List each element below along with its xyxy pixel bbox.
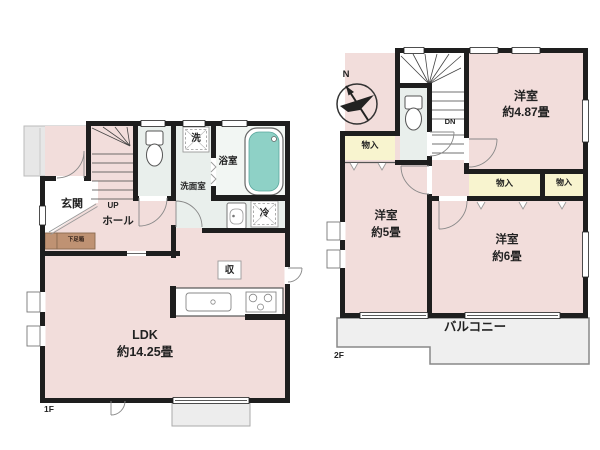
window (404, 48, 424, 54)
floor-plan-canvas: 玄関 ホール UP 下足箱 洗 浴室 洗面室 冷 収 LDK 約14.25畳 1… (0, 0, 600, 450)
window (583, 232, 589, 277)
casement-window (27, 292, 40, 312)
bedroom-a-size-label: 約4.87畳 (481, 106, 571, 118)
fixtures-2f (405, 96, 422, 130)
floor-plan-drawing (0, 0, 600, 450)
window (470, 48, 498, 54)
washroom-label: 洗面室 (174, 182, 212, 191)
bedroom-c-name-label: 洋室 (472, 235, 542, 247)
bedroom-a-name-label: 洋室 (486, 90, 566, 102)
floor1-label: 1F (44, 405, 64, 414)
balcony-label: バルコニー (415, 321, 535, 334)
window (583, 100, 589, 142)
shoe-box-label: 下足箱 (57, 238, 95, 244)
closet3-label: 物入 (545, 179, 583, 187)
casement-window (327, 222, 340, 240)
stairs-down-label: DN (438, 118, 462, 126)
window (183, 121, 205, 127)
kitchen-sink (186, 293, 231, 311)
window (40, 206, 46, 225)
casement-window (27, 326, 40, 346)
ldk-name-label: LDK (115, 329, 175, 342)
fridge-label: 冷 (251, 209, 278, 219)
window (512, 48, 540, 54)
closet1-label: 物入 (345, 141, 395, 150)
window (141, 121, 165, 127)
bedroom-b-size-label: 約5畳 (352, 228, 420, 240)
bedroom-c-size-label: 約6畳 (472, 252, 542, 264)
shoe-box-small (45, 233, 57, 249)
entrance-label: 玄関 (52, 199, 92, 210)
stairs-up-label: UP (101, 202, 125, 210)
toilet2-fixture (405, 96, 422, 109)
closet2-label: 物入 (469, 179, 540, 188)
toilet1-fixture (146, 131, 163, 145)
floor2-label: 2F (334, 351, 354, 360)
casement-window (327, 250, 340, 268)
compass-n-label: N (336, 70, 356, 80)
bathroom-label: 浴室 (213, 157, 243, 167)
ldk-size-label: 約14.25畳 (95, 346, 195, 359)
storage-label: 収 (218, 266, 241, 276)
hall-label: ホール (94, 216, 142, 227)
bedroom-b-name-label: 洋室 (352, 211, 420, 223)
washer-label: 洗 (183, 134, 209, 144)
window (222, 121, 247, 127)
terrace (172, 403, 250, 426)
